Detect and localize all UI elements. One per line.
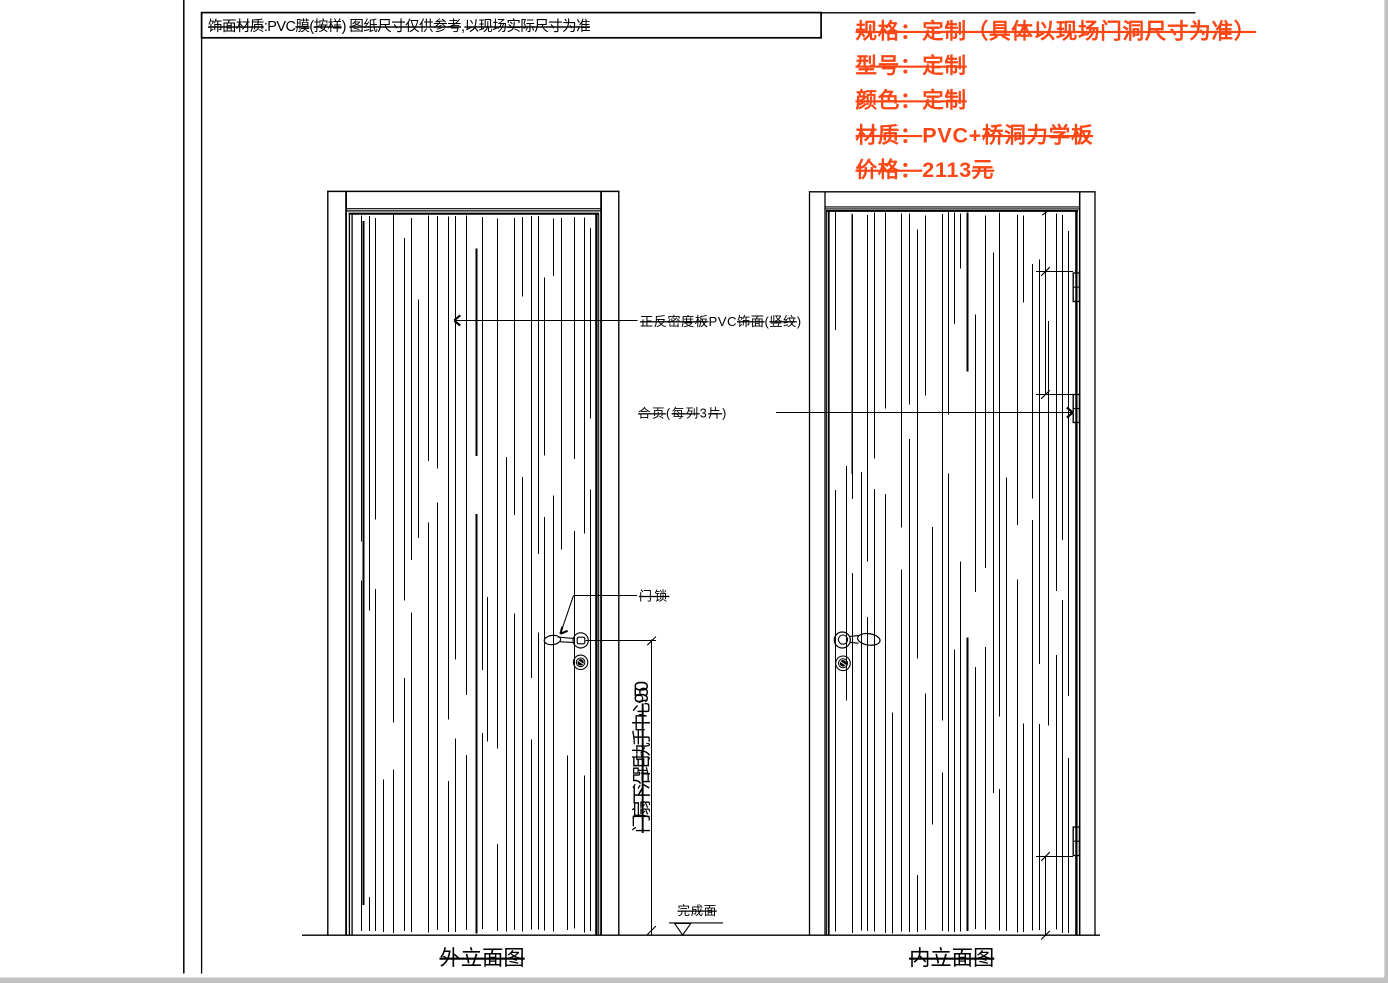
svg-text:价格：2113元: 价格：2113元 xyxy=(856,157,995,182)
svg-text:型号：定制: 型号：定制 xyxy=(856,53,967,78)
svg-text:规格：定制（具体以现场门洞尺寸为准）: 规格：定制（具体以现场门洞尺寸为准） xyxy=(856,18,1257,43)
svg-text:外立面图: 外立面图 xyxy=(439,946,524,970)
svg-text:完成面: 完成面 xyxy=(678,903,717,918)
svg-text:内立面图: 内立面图 xyxy=(909,946,994,970)
svg-text:材质：PVC+桥洞力学板: 材质：PVC+桥洞力学板 xyxy=(856,122,1094,147)
svg-text:饰面材质:PVC膜(按样) 图纸尺寸仅供参考,以现场实际尺: 饰面材质:PVC膜(按样) 图纸尺寸仅供参考,以现场实际尺寸为准 xyxy=(208,18,590,35)
svg-text:门扇下沿距执手中心950: 门扇下沿距执手中心950 xyxy=(631,681,653,833)
svg-text:合页(每列3片): 合页(每列3片) xyxy=(638,406,728,421)
svg-text:正反密度板PVC饰面(竖纹): 正反密度板PVC饰面(竖纹) xyxy=(640,313,802,329)
svg-text:门锁: 门锁 xyxy=(639,589,669,604)
svg-text:颜色：定制: 颜色：定制 xyxy=(856,88,967,113)
